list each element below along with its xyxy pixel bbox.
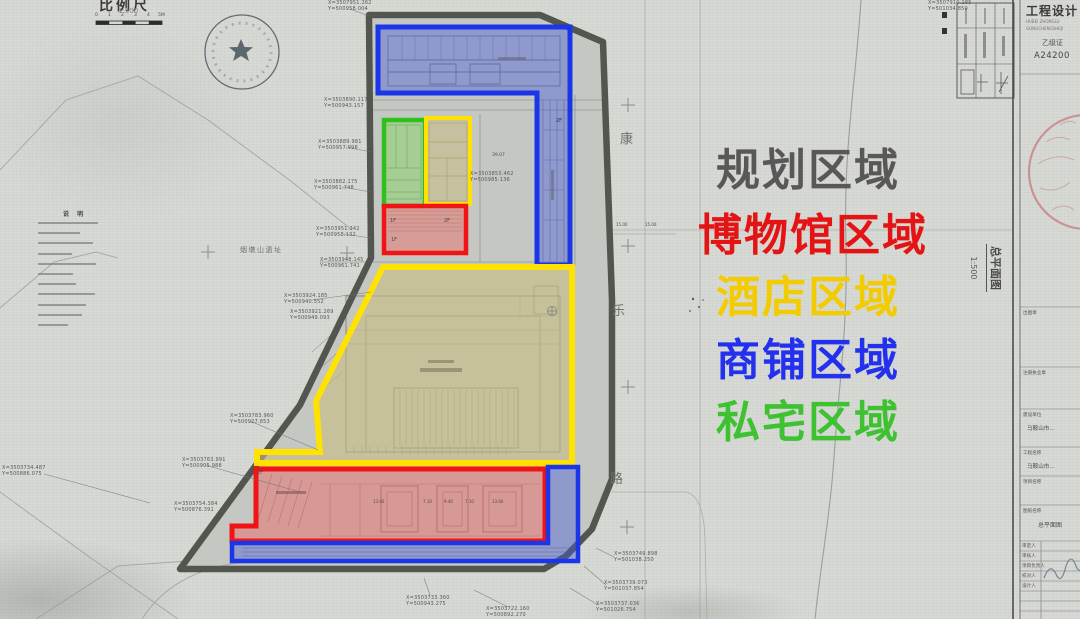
- zone-museum-bottom: [232, 469, 545, 541]
- floor-label: 1F: [391, 237, 397, 243]
- illegible-label: [420, 368, 462, 372]
- note-line: [38, 242, 93, 244]
- coordinate-label: X=3503783.960Y=500927.853: [230, 414, 274, 425]
- round-seal: [205, 15, 279, 89]
- legend-item-residence: 私宅区域: [716, 401, 900, 445]
- tb-row-label: 出图章: [1023, 310, 1037, 316]
- title-block-sub1: HUBEI ZHONGLU: [1026, 19, 1060, 24]
- legend-item-museum: 博物馆区域: [698, 214, 928, 258]
- coordinate-label: X=3503951.342Y=500958.132: [316, 227, 360, 238]
- floor-label: 2F: [556, 118, 562, 124]
- coordinate-label: X=3503739.073Y=501037.854: [604, 581, 648, 592]
- tb-sign-label: 校对人: [1022, 573, 1036, 579]
- legend-item-planning: 规划区域: [716, 149, 900, 193]
- title-block-header: 工程设计: [1026, 2, 1078, 19]
- ink-specks: [689, 298, 704, 312]
- coordinate-label: X=3503921.269Y=500949.093: [290, 310, 334, 321]
- note-line: [38, 273, 73, 275]
- dim-label: 15.00: [616, 222, 627, 227]
- coordinate-label: X=3507951.262Y=500958.004: [328, 1, 372, 12]
- tb-row-value: 马鞍山市…: [1027, 424, 1055, 432]
- dim-label: 9.40: [444, 499, 453, 504]
- drawing-title: 总平面图 1:500: [951, 237, 1007, 299]
- zone-hotel-small: [426, 118, 470, 204]
- coordinate-label: X=3503889.981Y=500957.998: [318, 140, 362, 151]
- dim-label: 39.07: [492, 153, 505, 158]
- scale-tick-2: 2: [121, 13, 124, 18]
- tb-sign-label: 设计人: [1022, 583, 1036, 589]
- floor-label: 2F: [257, 470, 263, 476]
- tb-row-value: 马鞍山市…: [1027, 462, 1055, 470]
- illegible-label: [551, 170, 554, 200]
- tb-row-value: 总平面图: [1038, 520, 1062, 529]
- site-label: 烟墩山遗址: [240, 245, 283, 255]
- illegible-label: [498, 57, 526, 60]
- coordinate-label: X=3503763.991Y=500905.988: [182, 458, 226, 469]
- coordinate-label: X=3503749.898Y=501038.250: [614, 552, 658, 563]
- road-name-char-3: 路: [610, 468, 623, 487]
- symbol-table: [942, 3, 1014, 98]
- illegible-label: [276, 491, 306, 494]
- dim-label: 7.10: [423, 499, 432, 504]
- note-line: [38, 293, 95, 295]
- coordinate-label: X=3503890.117Y=500943.157: [324, 98, 368, 109]
- coordinate-label: X=3503734.487Y=500886.075: [2, 466, 46, 477]
- scale-bar: [96, 21, 162, 25]
- tb-sign-label: 项目负责人: [1022, 563, 1045, 569]
- tb-row-label: 工程名称: [1023, 450, 1041, 456]
- coordinate-label: X=3503924.185Y=500940.552: [284, 294, 328, 305]
- road-name-char-1: 康: [620, 128, 633, 147]
- legend-item-shops: 商铺区域: [716, 339, 900, 383]
- scanned-site-plan-sheet: { "scale_bar": {"label":"比例尺","ratio":"1…: [0, 0, 1080, 619]
- floor-label: 2F: [444, 218, 450, 224]
- title-block-sub2: GONGCHENGSHEJI: [1026, 26, 1063, 31]
- coordinate-label: X=3503948.145Y=500961.741: [320, 258, 364, 269]
- scale-tick-1: 1: [108, 13, 111, 18]
- scale-tick-5: 5M: [158, 13, 165, 18]
- tb-sign-label: 审定人: [1022, 543, 1036, 549]
- coordinate-label: X=3503733.360Y=500943.275: [406, 596, 450, 607]
- coordinate-label: X=3503722.160Y=500892.270: [486, 607, 530, 618]
- tb-row-label: 建设单位: [1023, 412, 1041, 418]
- road-name-char-2: 乐: [612, 300, 625, 319]
- coordinate-label: X=3503754.384Y=500876.391: [174, 502, 218, 513]
- note-line: [38, 283, 76, 285]
- title-block-cert-no: A24200: [1034, 51, 1070, 61]
- note-line: [38, 222, 98, 224]
- scale-tick-0: 0: [95, 13, 98, 18]
- dim-label: 13.60: [492, 499, 503, 504]
- zone-residence: [384, 120, 425, 206]
- drawing-title-scale: 1:500: [969, 256, 978, 279]
- coordinate-label: X=3507910.185Y=501034.850: [928, 1, 972, 12]
- note-line: [38, 314, 82, 316]
- title-block-cert: 乙级证: [1042, 38, 1063, 48]
- dim-label: 13.60: [373, 499, 384, 504]
- note-line: [38, 324, 68, 326]
- note-line: [38, 232, 80, 234]
- legend-item-hotel: 酒店区域: [716, 276, 900, 320]
- floor-label: 1F: [390, 218, 396, 224]
- coordinate-label: X=3503737.036Y=501026.754: [596, 602, 640, 613]
- illegible-label: [428, 360, 454, 363]
- note-line: [38, 253, 72, 255]
- tb-row-label: 图纸名称: [1023, 508, 1041, 514]
- zone-museum-small: [384, 206, 466, 253]
- notes-header: 说 明: [63, 209, 86, 218]
- dim-label: 7.10: [465, 499, 474, 504]
- plan-drawing: [0, 0, 1080, 619]
- coordinate-label: X=3503882.175Y=500961.748: [314, 180, 358, 191]
- drawing-title-text: 总平面图: [986, 244, 1004, 292]
- note-line: [38, 304, 86, 306]
- seal-star-icon: [229, 39, 253, 61]
- tb-row-label: 注册执业章: [1023, 370, 1046, 376]
- red-stamp: [1029, 115, 1080, 229]
- note-line: [38, 263, 96, 265]
- scale-tick-3: 3: [134, 13, 137, 18]
- tb-sign-label: 审核人: [1022, 553, 1036, 559]
- tb-row-label: 项目名称: [1023, 479, 1041, 485]
- scale-tick-4: 4: [147, 13, 150, 18]
- dim-label: 15.00: [645, 222, 656, 227]
- coordinate-label: X=3503853.462Y=500985.136: [470, 172, 514, 183]
